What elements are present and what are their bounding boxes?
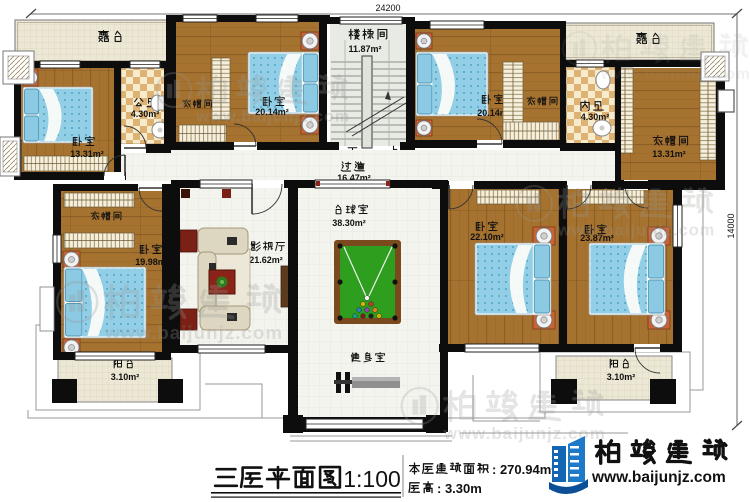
svg-text:www.baijunjz.com: www.baijunjz.com: [195, 108, 350, 125]
svg-text:www.baijunjz.com: www.baijunjz.com: [104, 322, 283, 343]
svg-text:11.87m²: 11.87m²: [348, 44, 381, 54]
svg-text:1:100: 1:100: [343, 466, 401, 492]
svg-text:13.31m²: 13.31m²: [652, 149, 686, 159]
svg-text:38.30m²: 38.30m²: [332, 218, 366, 228]
svg-text:www.baijunjz.com: www.baijunjz.com: [591, 469, 726, 486]
svg-text:www.baijunjz.com: www.baijunjz.com: [600, 66, 750, 83]
svg-text:: 270.94m²: : 270.94m²: [492, 462, 556, 477]
svg-text:14000: 14000: [726, 213, 736, 238]
svg-text:22.10m²: 22.10m²: [470, 232, 504, 242]
svg-text:13.31m²: 13.31m²: [70, 149, 104, 159]
svg-text:3.10m²: 3.10m²: [607, 372, 636, 382]
svg-text:: 3.30m: : 3.30m: [437, 481, 482, 496]
svg-text:3.10m²: 3.10m²: [111, 372, 140, 382]
svg-text:21.62m²: 21.62m²: [249, 255, 283, 265]
svg-text:24200: 24200: [375, 3, 400, 13]
svg-text:www.baijunjz.com: www.baijunjz.com: [557, 222, 716, 240]
